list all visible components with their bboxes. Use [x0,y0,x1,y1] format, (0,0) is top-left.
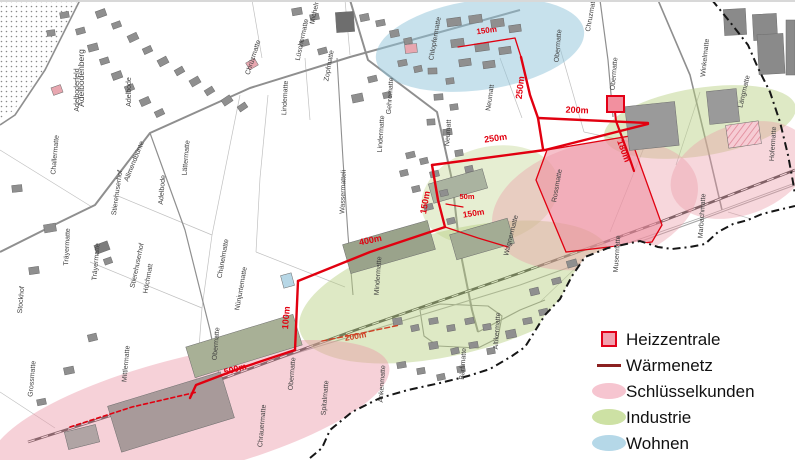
distance-label: 100m [280,306,292,330]
street-label: Adelbode [126,77,133,107]
legend-item-waermenetz: Wärmenetz [592,354,755,376]
legend-item-schluesselkunden: Schlüsselkunden [592,380,755,402]
legend-label: Wohnen [626,435,689,452]
distance-label: 200m [565,105,588,116]
schluesselkunden-swatch-icon [592,383,626,399]
distance-label: 50m [459,192,474,201]
legend-label: Heizzentrale [626,331,721,348]
legend-label: Industrie [626,409,691,426]
slide-top-edge [0,0,795,2]
industrie-swatch-icon [592,409,626,425]
legend: Heizzentrale Wärmenetz Schlüsselkunden I… [592,328,755,454]
legend-item-heizzentrale: Heizzentrale [592,328,755,350]
wohnen-swatch-icon [592,435,626,451]
street-label: Adelboderfeld [74,68,81,111]
legend-item-industrie: Industrie [592,406,755,428]
heizzentrale-swatch-icon [592,331,626,347]
legend-item-wohnen: Wohnen [592,432,755,454]
heat-network-map: AdelbodenbergAllmendbünteAdelboderfeldAd… [0,0,795,460]
waermenetz-swatch-icon [592,364,626,367]
legend-label: Schlüsselkunden [626,383,755,400]
heizzentrale-marker [607,96,624,112]
legend-label: Wärmenetz [626,357,713,374]
